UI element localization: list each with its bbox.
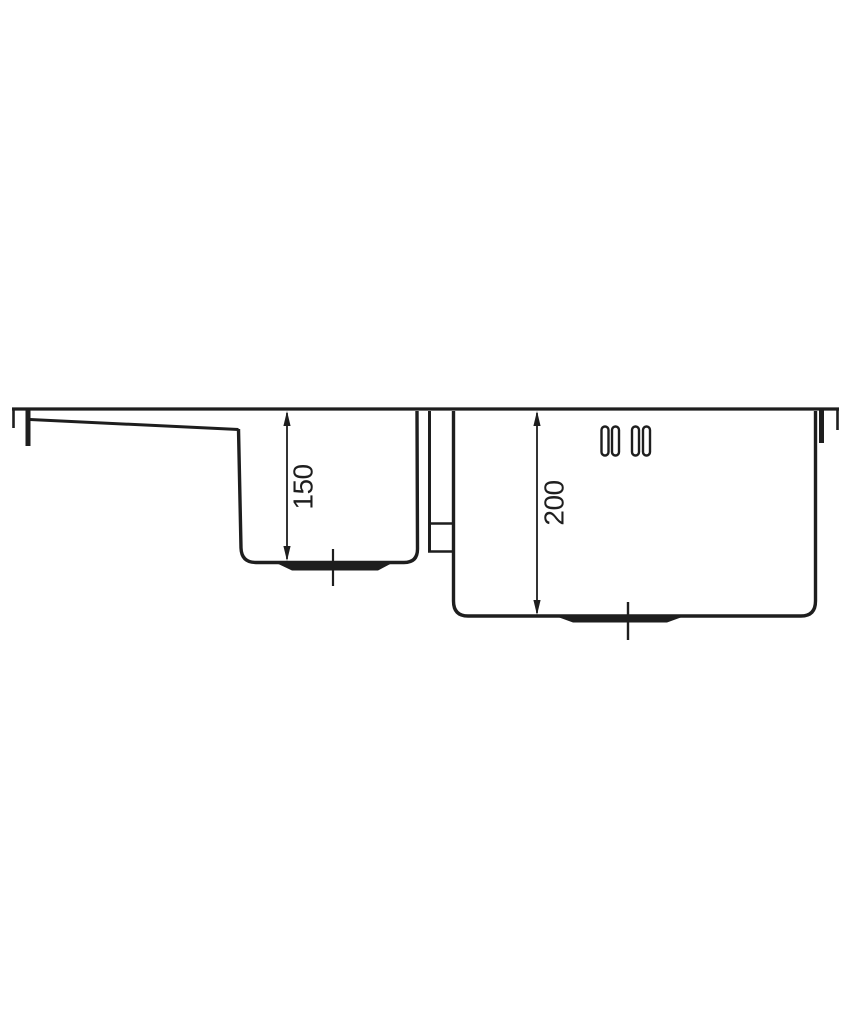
dim-200-arrow-down <box>533 600 540 615</box>
tap-hole-slots <box>602 427 651 456</box>
tap-hole-slot-2 <box>612 427 619 456</box>
drainboard-slope-line <box>30 420 239 430</box>
dim-150-arrow-up <box>283 411 290 426</box>
tap-hole-slot-1 <box>602 427 609 456</box>
tap-hole-slot-3 <box>632 427 639 456</box>
dim-200-arrow-up <box>533 411 540 426</box>
technical-drawing-svg: 150 200 <box>0 0 850 1036</box>
bowl-divider <box>428 411 454 552</box>
left-bowl-outline <box>239 411 418 563</box>
dimension-left-bowl-depth: 150 <box>283 411 318 561</box>
dim-150-label: 150 <box>288 464 319 509</box>
right-drain-plate <box>551 615 689 623</box>
sink-section-drawing: 150 200 <box>0 0 850 1036</box>
right-bowl-outline <box>454 411 816 616</box>
dimension-right-bowl-depth: 200 <box>533 411 569 615</box>
right-mounting-clip <box>822 408 838 443</box>
dim-200-label: 200 <box>539 480 570 525</box>
left-mounting-clip <box>14 408 29 446</box>
tap-hole-slot-4 <box>643 427 650 456</box>
dim-150-arrow-down <box>283 546 290 561</box>
